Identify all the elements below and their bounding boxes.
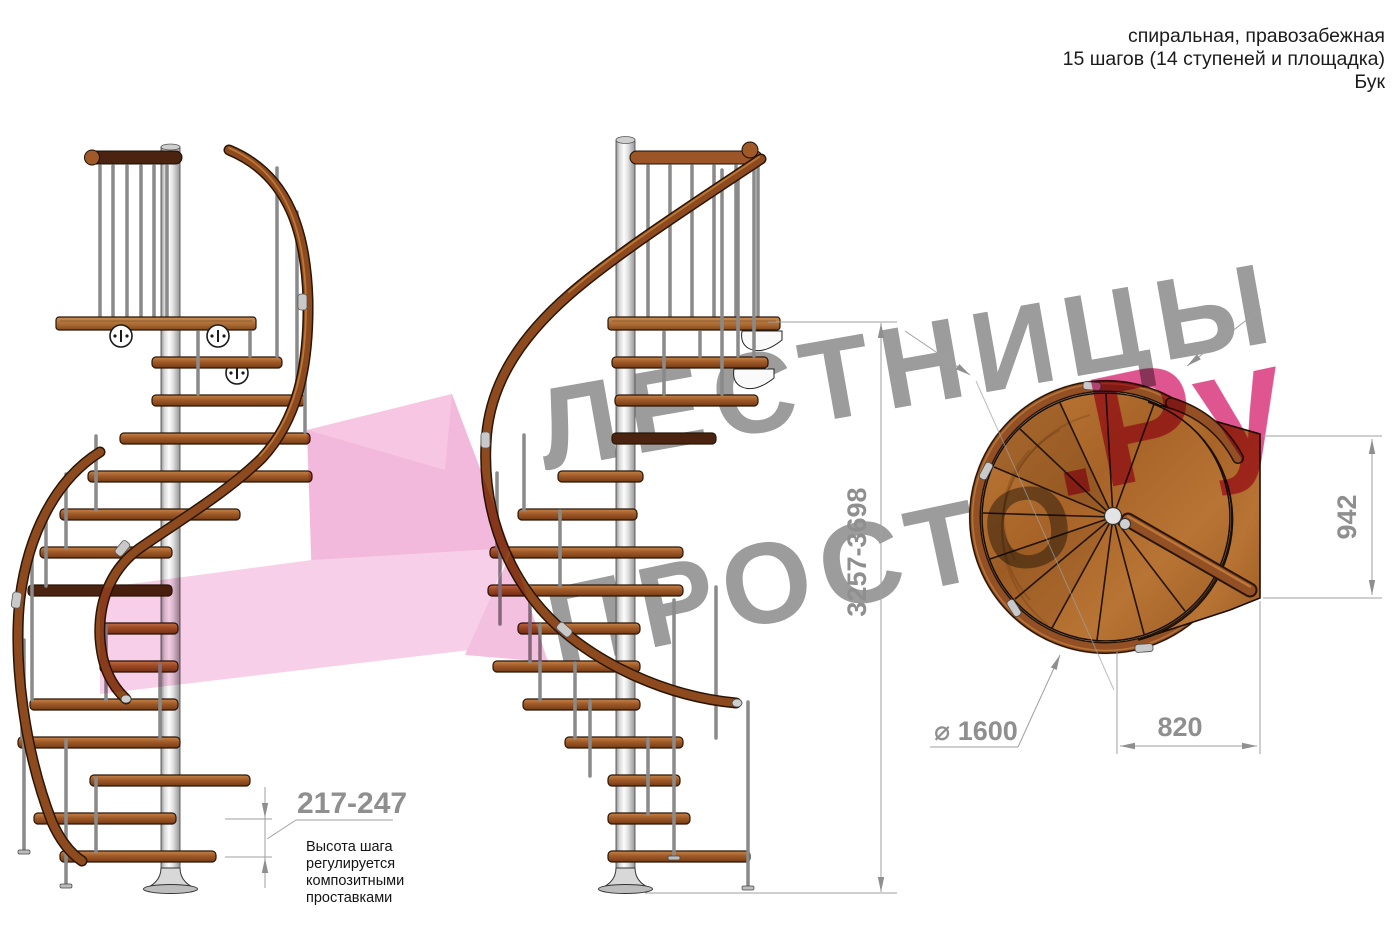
dim-landing-depth-label: 820 — [1157, 712, 1202, 742]
staircase-drawing: ЛЕСТНИЦЫ ПРОСТО — [0, 0, 1400, 939]
note-line: Высота шага — [306, 839, 393, 855]
dim-diameter-label: ⌀ 1600 — [934, 716, 1018, 746]
header-line-type: спиральная, правозабежная — [1128, 25, 1385, 47]
drawing-page: ЛЕСТНИЦЫ ПРОСТО — [0, 0, 1400, 939]
platform-balusters — [648, 166, 758, 316]
step — [152, 395, 305, 406]
side-view-left — [11, 144, 312, 894]
dim-landing-width-label: 942 — [1332, 494, 1362, 539]
side-view-front — [481, 137, 782, 894]
dim-total-height-label: 3257-3698 — [842, 487, 872, 616]
step — [60, 509, 240, 520]
pole-top-cap — [161, 144, 180, 150]
plan-rail-post-cap — [1120, 519, 1131, 530]
header-line-steps: 15 шагов (14 ступеней и площадка) — [1063, 48, 1385, 70]
step — [608, 775, 680, 786]
dim-step-height-label: 217-247 — [297, 787, 407, 820]
pole-base-plate — [144, 885, 198, 894]
step — [88, 471, 312, 482]
guardrail-end-ball — [85, 150, 100, 165]
step — [612, 433, 716, 444]
note-line: композитными — [306, 873, 404, 889]
step — [615, 395, 758, 406]
dim-diameter: ⌀ 1600 — [930, 655, 1060, 747]
step — [152, 357, 282, 368]
guardrail-end-ball — [742, 142, 758, 158]
note-line: проставками — [306, 890, 392, 906]
dim-step-height-note: Высота шага регулируется композитными пр… — [306, 839, 404, 906]
dim-step-height: 217-247 Высота шага регулируется компози… — [225, 787, 407, 906]
step — [612, 357, 768, 368]
step — [518, 509, 637, 520]
pole-top-cap — [616, 137, 635, 144]
header: спиральная, правозабежная 15 шагов (14 с… — [1063, 25, 1386, 93]
step — [90, 775, 250, 786]
step — [30, 699, 178, 710]
step — [558, 471, 643, 482]
pole-base-plate — [599, 885, 653, 894]
step — [565, 737, 683, 748]
step — [40, 547, 172, 558]
step — [18, 737, 180, 748]
platform-guardrail — [86, 151, 182, 164]
platform-balusters — [100, 166, 167, 316]
step — [490, 547, 683, 558]
header-line-material: Бук — [1354, 71, 1385, 93]
note-line: регулируется — [306, 856, 395, 872]
